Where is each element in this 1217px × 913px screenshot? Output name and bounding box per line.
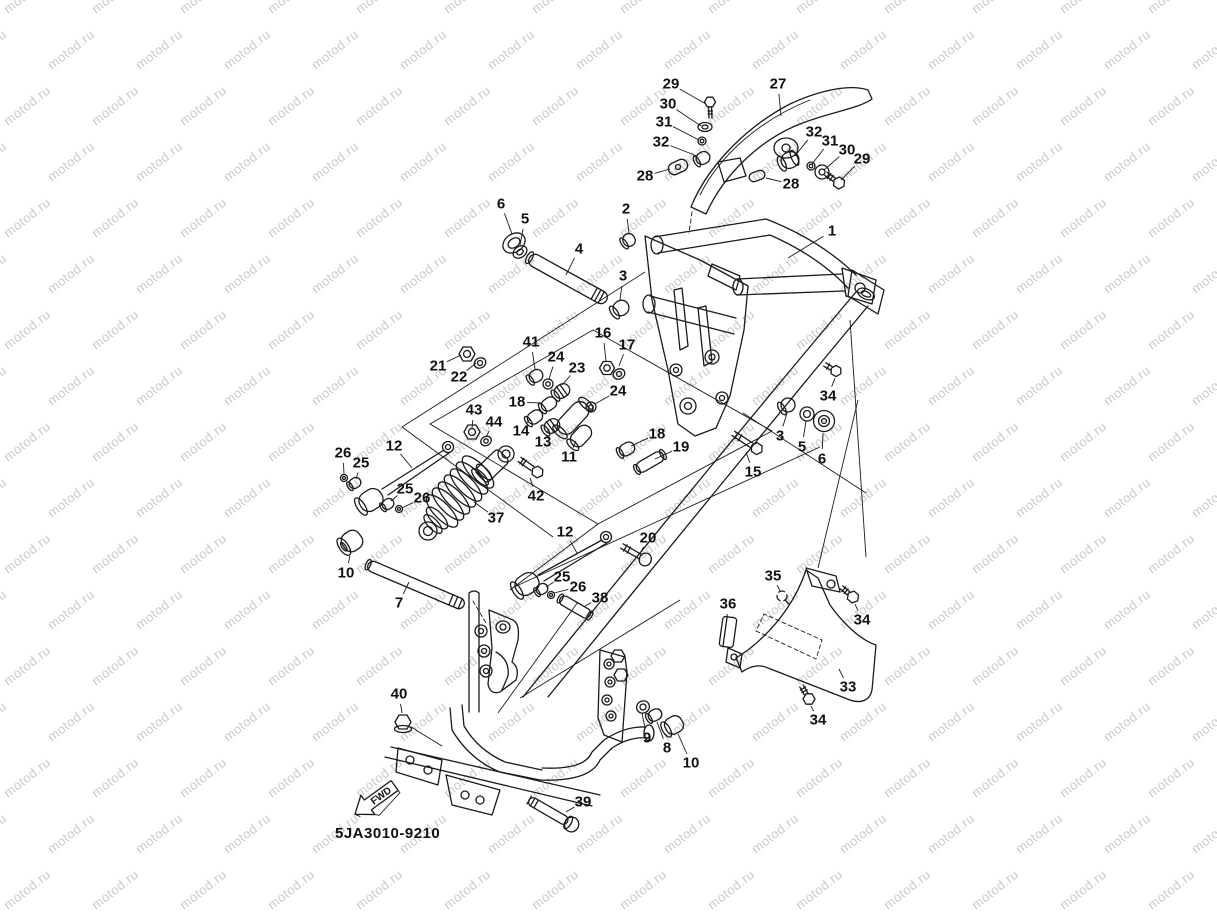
- watermark-text: motod.ru: [573, 26, 626, 72]
- watermark-text: motod.ru: [133, 474, 186, 520]
- watermark-text: motod.ru: [89, 754, 142, 800]
- callout-27: 27: [770, 76, 787, 93]
- watermark-text: motod.ru: [925, 362, 978, 408]
- watermark-text: motod.ru: [1057, 866, 1110, 912]
- leader-line-17: [619, 354, 623, 366]
- watermark-text: motod.ru: [1189, 586, 1217, 632]
- watermark-text: motod.ru: [45, 26, 98, 72]
- watermark-text: motod.ru: [265, 642, 318, 688]
- watermark-text: motod.ru: [705, 306, 758, 352]
- callout-6a: 6: [497, 196, 505, 213]
- watermark-text: motod.ru: [1189, 474, 1217, 520]
- parts-diagram-page: motod.rumotod.rumotod.rumotod.rumotod.ru…: [0, 0, 1217, 913]
- watermark-text: motod.ru: [485, 698, 538, 744]
- callout-19: 19: [673, 439, 690, 456]
- watermark-text: motod.ru: [969, 418, 1022, 464]
- callout-16: 16: [595, 325, 612, 342]
- watermark-text: motod.ru: [177, 306, 230, 352]
- watermark-text: motod.ru: [1013, 26, 1066, 72]
- leader-line-6b: [822, 433, 823, 449]
- watermark-text: motod.ru: [221, 810, 274, 856]
- watermark-text: motod.ru: [837, 26, 890, 72]
- watermark-text: motod.ru: [221, 586, 274, 632]
- watermark-text: motod.ru: [485, 810, 538, 856]
- watermark-text: motod.ru: [133, 250, 186, 296]
- watermark-text: motod.ru: [881, 530, 934, 576]
- watermark-text: motod.ru: [1, 0, 54, 16]
- watermark-text: motod.ru: [0, 474, 9, 520]
- watermark-text: motod.ru: [441, 0, 494, 16]
- watermark-text: motod.ru: [221, 26, 274, 72]
- diagram-code: 5JA3010-9210: [335, 825, 440, 842]
- watermark-text: motod.ru: [441, 306, 494, 352]
- watermark-text: motod.ru: [969, 866, 1022, 912]
- watermark-text: motod.ru: [881, 754, 934, 800]
- watermark-text: motod.ru: [1057, 418, 1110, 464]
- watermark-text: motod.ru: [1145, 0, 1198, 16]
- watermark-text: motod.ru: [133, 362, 186, 408]
- watermark-text: motod.ru: [1189, 26, 1217, 72]
- watermark-text: motod.ru: [1145, 306, 1198, 352]
- watermark-text: motod.ru: [177, 82, 230, 128]
- watermark-text: motod.ru: [969, 754, 1022, 800]
- watermark-text: motod.ru: [89, 866, 142, 912]
- watermark-text: motod.ru: [529, 866, 582, 912]
- watermark-text: motod.ru: [1013, 586, 1066, 632]
- leader-line-34b: [811, 706, 814, 711]
- watermark-text: motod.ru: [925, 810, 978, 856]
- watermark-text: motod.ru: [45, 586, 98, 632]
- watermark-text: motod.ru: [1145, 754, 1198, 800]
- callout-17: 17: [619, 337, 636, 354]
- watermark-text: motod.ru: [1145, 418, 1198, 464]
- watermark-text: motod.ru: [661, 586, 714, 632]
- callout-28b: 28: [783, 176, 800, 193]
- watermark-text: motod.ru: [133, 586, 186, 632]
- watermark-text: motod.ru: [749, 810, 802, 856]
- callout-1: 1: [828, 223, 836, 240]
- watermark-text: motod.ru: [397, 26, 450, 72]
- watermark-text: motod.ru: [221, 474, 274, 520]
- callout-10b: 10: [683, 755, 700, 772]
- leader-line-31b: [812, 149, 824, 164]
- watermark-text: motod.ru: [441, 866, 494, 912]
- watermark-text: motod.ru: [309, 250, 362, 296]
- leader-line-26a: [343, 463, 344, 474]
- leader-line-5b: [804, 421, 806, 437]
- watermark-text: motod.ru: [0, 698, 9, 744]
- watermark-text: motod.ru: [309, 698, 362, 744]
- watermark-text: motod.ru: [1013, 362, 1066, 408]
- callout-36: 36: [720, 596, 737, 613]
- watermark-text: motod.ru: [925, 474, 978, 520]
- watermark-text: motod.ru: [617, 866, 670, 912]
- watermark-text: motod.ru: [617, 0, 670, 16]
- watermark-text: motod.ru: [353, 0, 406, 16]
- watermark-text: motod.ru: [705, 754, 758, 800]
- watermark-text: motod.ru: [925, 26, 978, 72]
- watermark-text: motod.ru: [793, 194, 846, 240]
- callout-12b: 12: [557, 524, 574, 541]
- watermark-text: motod.ru: [0, 138, 9, 184]
- watermark-text: motod.ru: [1145, 642, 1198, 688]
- callout-34c: 34: [820, 388, 837, 405]
- callout-37: 37: [488, 510, 505, 527]
- leader-line-38: [585, 603, 591, 606]
- callout-28a: 28: [637, 168, 654, 185]
- watermark-text: motod.ru: [661, 474, 714, 520]
- watermark-text: motod.ru: [265, 82, 318, 128]
- watermark-text: motod.ru: [793, 0, 846, 16]
- leader-line-12a: [400, 454, 412, 468]
- watermark-text: motod.ru: [1101, 810, 1154, 856]
- callout-14: 14: [513, 423, 530, 440]
- callout-26c: 26: [570, 579, 587, 596]
- callout-32b: 32: [806, 124, 823, 141]
- leader-line-24b: [595, 396, 609, 404]
- watermark-text: motod.ru: [485, 26, 538, 72]
- callout-31a: 31: [656, 114, 673, 131]
- watermark-text: motod.ru: [1, 194, 54, 240]
- watermark-text: motod.ru: [529, 82, 582, 128]
- watermark-text: motod.ru: [45, 474, 98, 520]
- watermark-text: motod.ru: [705, 0, 758, 16]
- leader-line-28b: [766, 178, 781, 182]
- callout-20: 20: [640, 530, 657, 547]
- callout-31b: 31: [822, 133, 839, 150]
- watermark-text: motod.ru: [89, 642, 142, 688]
- watermark-text: motod.ru: [177, 194, 230, 240]
- watermark-text: motod.ru: [1101, 138, 1154, 184]
- watermark-text: motod.ru: [1057, 82, 1110, 128]
- watermark-text: motod.ru: [881, 82, 934, 128]
- watermark-text: motod.ru: [309, 586, 362, 632]
- watermark-text: motod.ru: [969, 0, 1022, 16]
- leader-line-35: [777, 585, 780, 591]
- leader-line-21: [447, 355, 461, 362]
- watermark-text: motod.ru: [1189, 698, 1217, 744]
- callout-34a: 34: [854, 612, 871, 629]
- watermark-text: motod.ru: [1101, 474, 1154, 520]
- callout-26b: 26: [414, 490, 431, 507]
- leader-line-30a: [676, 110, 701, 126]
- watermark-text: motod.ru: [705, 82, 758, 128]
- watermark-text: motod.ru: [353, 194, 406, 240]
- watermark-text: motod.ru: [1057, 754, 1110, 800]
- callout-41: 41: [523, 334, 540, 351]
- watermark-text: motod.ru: [529, 194, 582, 240]
- watermark-text: motod.ru: [353, 82, 406, 128]
- watermark-text: motod.ru: [969, 82, 1022, 128]
- watermark-text: motod.ru: [221, 250, 274, 296]
- watermark-text: motod.ru: [793, 642, 846, 688]
- watermark-text: motod.ru: [793, 754, 846, 800]
- callout-23: 23: [569, 360, 586, 377]
- watermark-text: motod.ru: [837, 362, 890, 408]
- watermark-text: motod.ru: [133, 138, 186, 184]
- watermark-text: motod.ru: [1, 530, 54, 576]
- watermark-text: motod.ru: [89, 418, 142, 464]
- callout-32a: 32: [653, 134, 670, 151]
- watermark-text: motod.ru: [485, 138, 538, 184]
- watermark-text: motod.ru: [1101, 26, 1154, 72]
- watermark-text: motod.ru: [89, 530, 142, 576]
- watermark-text: motod.ru: [309, 474, 362, 520]
- watermark-text: motod.ru: [661, 362, 714, 408]
- watermark-text: motod.ru: [177, 642, 230, 688]
- watermark-text: motod.ru: [177, 418, 230, 464]
- watermark-text: motod.ru: [133, 26, 186, 72]
- watermark-text: motod.ru: [1189, 810, 1217, 856]
- watermark-text: motod.ru: [837, 698, 890, 744]
- watermark-text: motod.ru: [177, 866, 230, 912]
- leader-line-25c: [546, 582, 554, 587]
- leader-line-30b: [824, 157, 839, 170]
- callout-42: 42: [528, 488, 545, 505]
- callout-3a: 3: [619, 268, 627, 285]
- watermark-text: motod.ru: [1013, 698, 1066, 744]
- callout-24b: 24: [610, 383, 627, 400]
- watermark-text: motod.ru: [1101, 698, 1154, 744]
- leader-line-31a: [673, 127, 699, 140]
- watermark-text: motod.ru: [0, 362, 9, 408]
- watermark-text: motod.ru: [881, 642, 934, 688]
- watermark-text: motod.ru: [529, 0, 582, 16]
- watermark-text: motod.ru: [793, 866, 846, 912]
- leader-line-15: [746, 452, 750, 463]
- callout-18a: 18: [509, 394, 526, 411]
- callout-25b: 25: [397, 481, 414, 498]
- watermark-text: motod.ru: [45, 698, 98, 744]
- callout-18b: 18: [649, 426, 666, 443]
- leader-line-16: [604, 343, 606, 361]
- watermark-text: motod.ru: [1, 866, 54, 912]
- watermark-text: motod.ru: [45, 810, 98, 856]
- watermark-text: motod.ru: [1013, 474, 1066, 520]
- watermark-text: motod.ru: [133, 810, 186, 856]
- watermark-text: motod.ru: [705, 530, 758, 576]
- watermark-text: motod.ru: [749, 250, 802, 296]
- watermark-text: motod.ru: [0, 26, 9, 72]
- watermark-text: motod.ru: [265, 306, 318, 352]
- watermark-text: motod.ru: [397, 250, 450, 296]
- watermark-text: motod.ru: [309, 362, 362, 408]
- watermark-text: motod.ru: [969, 306, 1022, 352]
- watermark-text: motod.ru: [89, 306, 142, 352]
- watermark-text: motod.ru: [353, 306, 406, 352]
- callout-25c: 25: [554, 569, 571, 586]
- leader-line-29a: [680, 89, 706, 104]
- callout-12a: 12: [386, 438, 403, 455]
- watermark-text: motod.ru: [441, 530, 494, 576]
- watermark-text: motod.ru: [925, 138, 978, 184]
- callout-25a: 25: [353, 455, 370, 472]
- watermark-text: motod.ru: [1189, 138, 1217, 184]
- watermark-text: motod.ru: [881, 194, 934, 240]
- watermark-text: motod.ru: [397, 138, 450, 184]
- watermark-text: motod.ru: [0, 586, 9, 632]
- watermark-text: motod.ru: [485, 586, 538, 632]
- callout-22: 22: [451, 369, 468, 386]
- callout-24a: 24: [548, 349, 565, 366]
- watermark-text: motod.ru: [749, 26, 802, 72]
- callout-8: 8: [663, 740, 671, 757]
- callout-26a: 26: [335, 445, 352, 462]
- watermark-layer: motod.rumotod.rumotod.rumotod.rumotod.ru…: [0, 0, 1217, 912]
- callout-13: 13: [535, 434, 552, 451]
- watermark-text: motod.ru: [1057, 642, 1110, 688]
- leader-line-10b: [678, 734, 687, 754]
- watermark-text: motod.ru: [1145, 530, 1198, 576]
- callout-40: 40: [391, 686, 408, 703]
- callout-33: 33: [840, 679, 857, 696]
- watermark-text: motod.ru: [353, 866, 406, 912]
- watermark-text: motod.ru: [1013, 250, 1066, 296]
- watermark-text: motod.ru: [265, 418, 318, 464]
- callout-3b: 3: [776, 428, 784, 445]
- watermark-text: motod.ru: [661, 810, 714, 856]
- watermark-text: motod.ru: [749, 474, 802, 520]
- watermark-text: motod.ru: [661, 250, 714, 296]
- watermark-text: motod.ru: [1013, 810, 1066, 856]
- watermark-text: motod.ru: [661, 26, 714, 72]
- watermark-text: motod.ru: [1057, 306, 1110, 352]
- watermark-text: motod.ru: [133, 698, 186, 744]
- callout-10a: 10: [338, 565, 355, 582]
- watermark-text: motod.ru: [1, 642, 54, 688]
- watermark-text: motod.ru: [441, 754, 494, 800]
- watermark-text: motod.ru: [265, 0, 318, 16]
- watermark-text: motod.ru: [177, 0, 230, 16]
- watermark-text: motod.ru: [221, 362, 274, 408]
- watermark-text: motod.ru: [89, 0, 142, 16]
- watermark-text: motod.ru: [573, 138, 626, 184]
- watermark-text: motod.ru: [265, 754, 318, 800]
- watermark-text: motod.ru: [221, 698, 274, 744]
- watermark-text: motod.ru: [0, 810, 9, 856]
- watermark-text: motod.ru: [265, 530, 318, 576]
- watermark-text: motod.ru: [969, 642, 1022, 688]
- watermark-text: motod.ru: [925, 250, 978, 296]
- watermark-text: motod.ru: [265, 194, 318, 240]
- watermark-text: motod.ru: [969, 530, 1022, 576]
- watermark-text: motod.ru: [177, 754, 230, 800]
- leader-line-5a: [520, 229, 523, 245]
- watermark-text: motod.ru: [1, 306, 54, 352]
- watermark-text: motod.ru: [441, 194, 494, 240]
- callout-21: 21: [430, 358, 447, 375]
- watermark-text: motod.ru: [0, 250, 9, 296]
- watermark-text: motod.ru: [969, 194, 1022, 240]
- watermark-text: motod.ru: [1057, 0, 1110, 16]
- leader-line-9: [642, 713, 645, 728]
- watermark-text: motod.ru: [881, 418, 934, 464]
- watermark-text: motod.ru: [45, 362, 98, 408]
- watermark-text: motod.ru: [881, 306, 934, 352]
- watermark-text: motod.ru: [45, 250, 98, 296]
- watermark-text: motod.ru: [1189, 250, 1217, 296]
- callout-7: 7: [395, 595, 403, 612]
- watermark-text: motod.ru: [793, 530, 846, 576]
- watermark-text: motod.ru: [1, 418, 54, 464]
- watermark-text: motod.ru: [749, 698, 802, 744]
- callout-29a: 29: [663, 76, 680, 93]
- watermark-text: motod.ru: [1145, 82, 1198, 128]
- watermark-text: motod.ru: [309, 26, 362, 72]
- leader-line-24a: [549, 367, 553, 379]
- watermark-text: motod.ru: [353, 530, 406, 576]
- watermark-text: motod.ru: [705, 866, 758, 912]
- leader-line-41: [532, 352, 535, 369]
- watermark-text: motod.ru: [45, 138, 98, 184]
- watermark-text: motod.ru: [837, 810, 890, 856]
- watermark-text: motod.ru: [265, 866, 318, 912]
- callout-11: 11: [561, 449, 577, 466]
- callout-4: 4: [575, 241, 584, 258]
- callout-9: 9: [643, 730, 651, 747]
- watermark-text: motod.ru: [397, 698, 450, 744]
- leader-line-10a: [348, 556, 350, 563]
- leader-line-34c: [832, 378, 835, 387]
- leader-line-40: [401, 704, 402, 713]
- watermark-text: motod.ru: [353, 642, 406, 688]
- watermark-text: motod.ru: [925, 698, 978, 744]
- watermark-text: motod.ru: [617, 754, 670, 800]
- watermark-text: motod.ru: [221, 138, 274, 184]
- watermark-text: motod.ru: [1101, 362, 1154, 408]
- leader-line-6a: [504, 213, 512, 234]
- watermark-text: motod.ru: [1013, 138, 1066, 184]
- callout-5b: 5: [798, 439, 806, 456]
- callout-34b: 34: [810, 712, 827, 729]
- callout-15: 15: [745, 464, 762, 481]
- watermark-text: motod.ru: [1101, 250, 1154, 296]
- watermark-text: motod.ru: [1057, 194, 1110, 240]
- watermark-text: motod.ru: [1189, 362, 1217, 408]
- callout-39: 39: [575, 794, 592, 811]
- leader-line-33: [839, 669, 844, 678]
- callout-29b: 29: [854, 151, 871, 168]
- watermark-text: motod.ru: [309, 138, 362, 184]
- leader-line-39: [566, 807, 574, 812]
- leader-line-23: [562, 375, 570, 385]
- watermark-text: motod.ru: [749, 586, 802, 632]
- watermark-text: motod.ru: [1057, 530, 1110, 576]
- watermark-text: motod.ru: [1, 82, 54, 128]
- callout-38: 38: [592, 590, 609, 607]
- leader-line-27: [779, 94, 781, 116]
- watermark-text: motod.ru: [1101, 586, 1154, 632]
- watermark-text: motod.ru: [1, 754, 54, 800]
- watermark-text: motod.ru: [1145, 194, 1198, 240]
- callout-5a: 5: [521, 211, 529, 228]
- watermark-text: motod.ru: [177, 530, 230, 576]
- watermark-text: motod.ru: [881, 866, 934, 912]
- watermark-text: motod.ru: [1145, 866, 1198, 912]
- leader-line-18a: [527, 402, 541, 403]
- callout-6b: 6: [818, 451, 826, 468]
- watermark-text: motod.ru: [89, 82, 142, 128]
- leader-line-26c: [554, 589, 568, 593]
- watermark-text: motod.ru: [881, 0, 934, 16]
- callout-35: 35: [765, 568, 782, 585]
- callout-2: 2: [622, 201, 630, 218]
- watermark-text: motod.ru: [573, 810, 626, 856]
- watermark-text: motod.ru: [89, 194, 142, 240]
- callout-30a: 30: [660, 96, 677, 113]
- watermark-text: motod.ru: [925, 586, 978, 632]
- callout-44: 44: [486, 414, 503, 431]
